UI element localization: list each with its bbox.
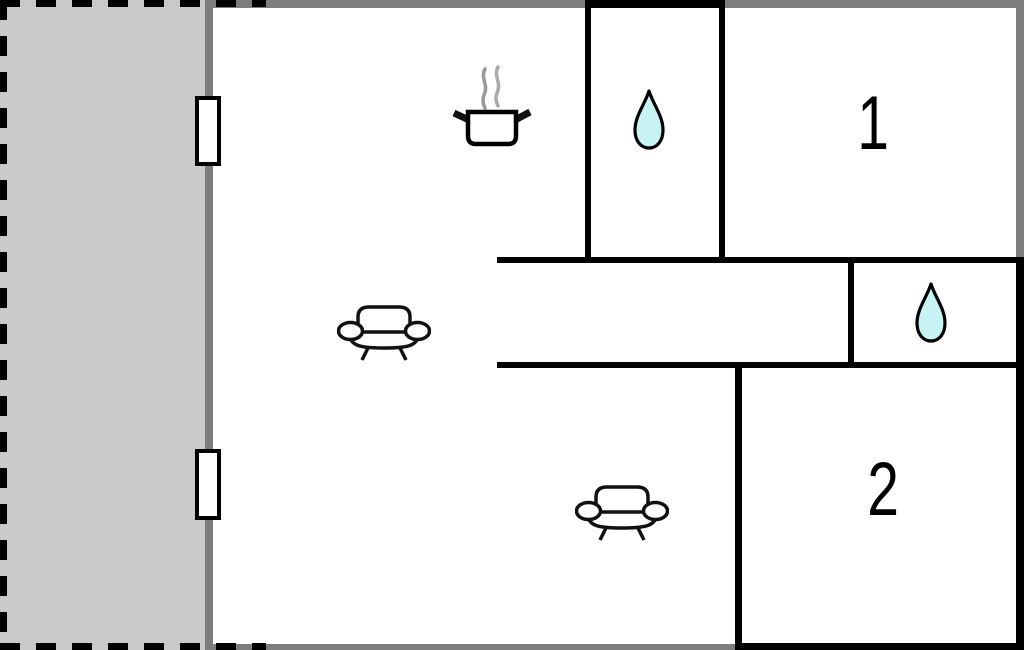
- water-drop-icon-right: [912, 281, 950, 345]
- room-2-number: 2: [867, 452, 899, 528]
- window-1: [195, 96, 221, 166]
- wall-bathroom-right: [719, 0, 725, 263]
- wall-outer-right-upper: [1016, 0, 1024, 263]
- pot-body: [468, 112, 516, 144]
- sofa-icon-lower: [575, 482, 669, 542]
- steam-line-2: [496, 67, 499, 106]
- wall-room2-left: [735, 362, 742, 650]
- room-2-label: 2: [838, 452, 928, 528]
- wall-bathroom2-left: [848, 257, 854, 368]
- wall-outer-bottom: [205, 644, 740, 650]
- wall-bathroom-top: [585, 0, 725, 8]
- floor-plan: 1 2: [0, 0, 1024, 650]
- wall-outer-right-lower: [1016, 257, 1024, 650]
- dashed-boundary-left: [0, 0, 7, 650]
- room-1-number: 1: [857, 86, 889, 162]
- window-2: [195, 449, 221, 520]
- terrace-area: [0, 0, 212, 650]
- sofa-icon-living: [337, 302, 431, 362]
- wall-bathroom-left: [585, 0, 591, 263]
- wall-corridor-top: [497, 257, 1024, 263]
- wall-room2-bottom: [735, 643, 1024, 650]
- water-drop-icon-top: [630, 88, 668, 152]
- room-1-label: 1: [828, 86, 918, 162]
- dashed-boundary-top: [0, 0, 266, 7]
- wall-corridor-bottom: [497, 362, 1024, 368]
- steam-line-1: [483, 69, 486, 108]
- cooking-pot-icon: [450, 64, 534, 148]
- dashed-boundary-bottom: [0, 643, 266, 650]
